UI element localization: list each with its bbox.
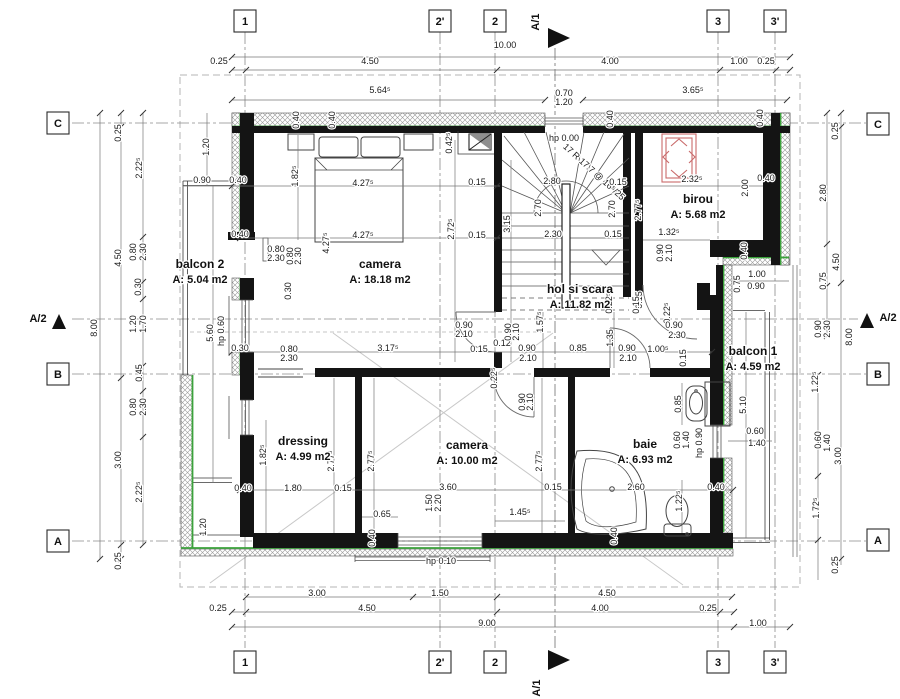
grid-bubble-label: C — [874, 119, 882, 131]
dim-text: 0.15 — [631, 296, 641, 314]
grid-bubble-label: 2' — [436, 16, 445, 28]
dim-text: 0.40 — [605, 110, 615, 128]
dim-text: 3.00 — [113, 451, 123, 469]
dim-text: 0.15 — [334, 483, 352, 493]
dressing-opening — [258, 369, 303, 377]
grid-bubble-label: 3' — [771, 16, 780, 28]
dim-text: 1.00 — [749, 618, 767, 628]
dim-text: 9.00 — [478, 618, 496, 628]
dim-text: 1.72⁵ — [811, 497, 821, 519]
dim-text: 0.25 — [209, 603, 227, 613]
room-area: A: 18.18 m2 — [349, 274, 410, 286]
dim-text: 4.50 — [113, 249, 123, 267]
dim-text: 0.90 — [665, 320, 683, 330]
dim-text: 2.30 — [267, 253, 285, 263]
bed — [288, 134, 433, 242]
room-area: A: 11.82 m2 — [550, 299, 611, 311]
room-area: A: 4.59 m2 — [725, 361, 780, 373]
dim-text: 0.60 — [746, 426, 764, 436]
dim-text: 3.15 — [502, 215, 512, 233]
section-label: A/1 — [530, 13, 542, 30]
dim-text: 2.22⁵ — [134, 157, 144, 179]
dim-text: 0.45 — [134, 364, 144, 382]
dim-text: 8.00 — [89, 319, 99, 337]
dim-text: 0.75 — [732, 275, 742, 293]
dim-text: 5.10 — [738, 396, 748, 414]
room-name: birou — [683, 192, 713, 206]
dim-text: 0.40 — [229, 175, 247, 185]
dim-text: hp 0.00 — [549, 133, 579, 143]
dim-text: 4.00 — [591, 603, 609, 613]
dim-text: 0.80 — [128, 243, 138, 261]
dim-text: 0.40 — [291, 111, 301, 129]
dim-text: 17 R 17.7 @ 16⁵/25 — [561, 141, 627, 202]
dim-text: 0.75 — [818, 272, 828, 290]
dim-text: 4.27⁵ — [352, 230, 374, 240]
dim-text: 0.15 — [544, 482, 562, 492]
dim-text: 1.00⁵ — [647, 344, 669, 354]
dim-text: 0.15 — [604, 229, 622, 239]
dim-text: 0.25 — [830, 556, 840, 574]
dim-text: 0.40 — [707, 482, 725, 492]
chimney-shaft — [458, 131, 494, 154]
dim-text: 1.20 — [198, 518, 208, 536]
dim-text: 3.17⁵ — [377, 343, 399, 353]
room-area: A: 5.68 m2 — [670, 209, 725, 221]
grid-bubble-label: B — [54, 369, 62, 381]
dim-text: 2.00 — [740, 179, 750, 197]
dim-text: 4.00 — [601, 56, 619, 66]
dim-text: 2.10 — [511, 323, 521, 341]
dim-text: 1.32⁵ — [658, 227, 680, 237]
grid-bubble-label: A — [874, 535, 882, 547]
grid-bubble-label: 2 — [492, 16, 498, 28]
dim-text: 2.30 — [280, 353, 298, 363]
grid-bubble-label: C — [54, 118, 62, 130]
dim-text: 8.00 — [844, 328, 854, 346]
dim-text: 2.30 — [822, 320, 832, 338]
dim-text: 0.85 — [673, 395, 683, 413]
dim-text: 2.77⁵ — [366, 450, 376, 472]
dim-text: 2.22⁵ — [134, 481, 144, 503]
dim-text: 4.50 — [598, 588, 616, 598]
dim-text: 2.30 — [138, 243, 148, 261]
dim-text: 1.22⁵ — [674, 490, 684, 512]
dim-text: 3.60 — [439, 482, 457, 492]
dim-text: 2.60 — [627, 482, 645, 492]
dim-text: 1.22⁵ — [810, 371, 820, 393]
dim-text: hp 0.10 — [426, 556, 456, 566]
dim-text: 0.40 — [234, 483, 252, 493]
dim-text: 1.20 — [201, 138, 211, 156]
dim-text: 1.57⁵ — [535, 311, 545, 333]
room-name: hol si scara — [547, 282, 613, 296]
dim-text: hp 0.60 — [216, 316, 226, 346]
dim-text: hp 0.90 — [694, 428, 704, 458]
dim-text: 1.40 — [822, 434, 832, 452]
dim-text: 0.25 — [113, 124, 123, 142]
dim-text: 1.80 — [284, 483, 302, 493]
dim-text: 0.25 — [699, 603, 717, 613]
section-label: A/2 — [879, 312, 896, 324]
dim-text: 0.85 — [569, 343, 587, 353]
dim-text: 0.22⁵ — [489, 367, 499, 389]
dim-text: 2.10 — [619, 353, 637, 363]
section-arrow — [52, 314, 66, 329]
dim-text: 2.70 — [607, 200, 617, 218]
dim-text: 2.10 — [519, 353, 537, 363]
grid-bubble-label: 1 — [242, 657, 248, 669]
room-area: A: 5.04 m2 — [172, 274, 227, 286]
dim-text: 1.45⁵ — [509, 507, 531, 517]
dim-text: 2.77⁵ — [534, 450, 544, 472]
dim-text: 0.40 — [739, 242, 749, 260]
dim-text: 1.35 — [605, 329, 615, 347]
dim-text: 0.30 — [133, 278, 143, 296]
dim-text: 3.00 — [833, 447, 843, 465]
dim-text: 0.15 — [678, 349, 688, 367]
dim-text: 0.25 — [210, 56, 228, 66]
dim-text: 2.30 — [544, 229, 562, 239]
dim-text: 0.80 — [128, 398, 138, 416]
dim-text: 5.60 — [205, 324, 215, 342]
dim-text: 2.70 — [533, 199, 543, 217]
dim-text: 1.82⁵ — [290, 165, 300, 187]
floor-plan-canvas: 10.000.254.504.001.000.255.64⁵3.65⁵0.701… — [0, 0, 900, 699]
section-arrow — [548, 28, 570, 48]
dim-text: 2.30 — [138, 398, 148, 416]
section-label: A/1 — [531, 679, 543, 696]
dim-text: 3.00 — [308, 588, 326, 598]
dim-text: 0.40 — [327, 111, 337, 129]
dim-text: 2.10 — [455, 329, 473, 339]
dim-text: 2.30 — [293, 247, 303, 265]
grid-bubble-label: 2' — [436, 657, 445, 669]
dim-text: 0.40 — [609, 527, 619, 545]
dim-text: 0.30 — [231, 343, 249, 353]
dim-text: 0.15 — [609, 177, 627, 187]
dim-text: 2.10 — [664, 244, 674, 262]
dim-text: 1.00 — [730, 56, 748, 66]
dim-text: 4.27⁵ — [352, 178, 374, 188]
dim-text: 2.32⁵ — [681, 174, 703, 184]
dim-text: 2.80 — [818, 184, 828, 202]
dim-text: 1.40 — [748, 438, 766, 448]
dim-text: 0.25 — [757, 56, 775, 66]
grid-bubble-label: 1 — [242, 16, 248, 28]
dim-text: 0.90 — [747, 281, 765, 291]
room-name: balcon 1 — [729, 344, 778, 358]
dim-text: 2.10 — [525, 393, 535, 411]
dim-text: 0.25 — [830, 122, 840, 140]
room-name: balcon 2 — [176, 257, 225, 271]
dim-text: 0.25 — [113, 552, 123, 570]
dim-text: 4.50 — [831, 253, 841, 271]
dim-text: 3.65⁵ — [682, 85, 704, 95]
roof-outline — [180, 75, 800, 587]
dim-text: 2.30 — [668, 330, 686, 340]
section-arrow — [860, 313, 874, 328]
dim-text: 0.15 — [468, 230, 486, 240]
dim-text: 0.40 — [757, 173, 775, 183]
grid-bubble-label: B — [874, 369, 882, 381]
dim-text: 1.20 — [128, 315, 138, 333]
dim-text: 0.40 — [231, 229, 249, 239]
room-area: A: 10.00 m2 — [436, 455, 497, 467]
dim-text: 4.50 — [358, 603, 376, 613]
section-arrow — [548, 650, 570, 670]
dim-text: 1.50 — [431, 588, 449, 598]
floor-plan-page: 10.000.254.504.001.000.255.64⁵3.65⁵0.701… — [0, 0, 900, 699]
dim-text: 0.65 — [373, 509, 391, 519]
dim-text: 0.15 — [470, 344, 488, 354]
dim-text: 1.82⁵ — [258, 444, 268, 466]
dim-text: 4.27⁵ — [321, 232, 331, 254]
dim-text: 0.42⁵ — [444, 132, 454, 154]
room-name: dressing — [278, 434, 328, 448]
dim-text: 5.64⁵ — [369, 85, 391, 95]
dim-text: 0.40 — [367, 529, 377, 547]
dim-text: 0.40 — [755, 109, 765, 127]
dim-text: 10.00 — [494, 40, 517, 50]
dim-text: 4.50 — [361, 56, 379, 66]
room-name: camera — [446, 438, 488, 452]
grid-bubble-label: 2 — [492, 657, 498, 669]
room-name: baie — [633, 437, 657, 451]
dim-text: 2.77⁵ — [633, 199, 643, 221]
dim-text: 0.15 — [468, 177, 486, 187]
grid-bubble-label: 3 — [715, 657, 721, 669]
dim-text: 0.90 — [193, 175, 211, 185]
section-label: A/2 — [29, 313, 46, 325]
dim-text: 2.20 — [433, 494, 443, 512]
dim-text: 0.90 — [618, 343, 636, 353]
dim-text: 1.70 — [138, 315, 148, 333]
grid-bubble-label: 3' — [771, 657, 780, 669]
dim-text: 2.80 — [543, 176, 561, 186]
room-area: A: 6.93 m2 — [617, 454, 672, 466]
grid-bubble-label: 3 — [715, 16, 721, 28]
dim-text: 0.30 — [283, 282, 293, 300]
dim-text: 1.40 — [681, 431, 691, 449]
room-name: camera — [359, 257, 401, 271]
room-area: A: 4.99 m2 — [275, 451, 330, 463]
dim-text: 1.20 — [555, 97, 573, 107]
dim-text: 0.90 — [518, 343, 536, 353]
grid-bubble-label: A — [54, 536, 62, 548]
dim-text: 2.72⁵ — [446, 218, 456, 240]
dim-text: 1.00 — [748, 269, 766, 279]
